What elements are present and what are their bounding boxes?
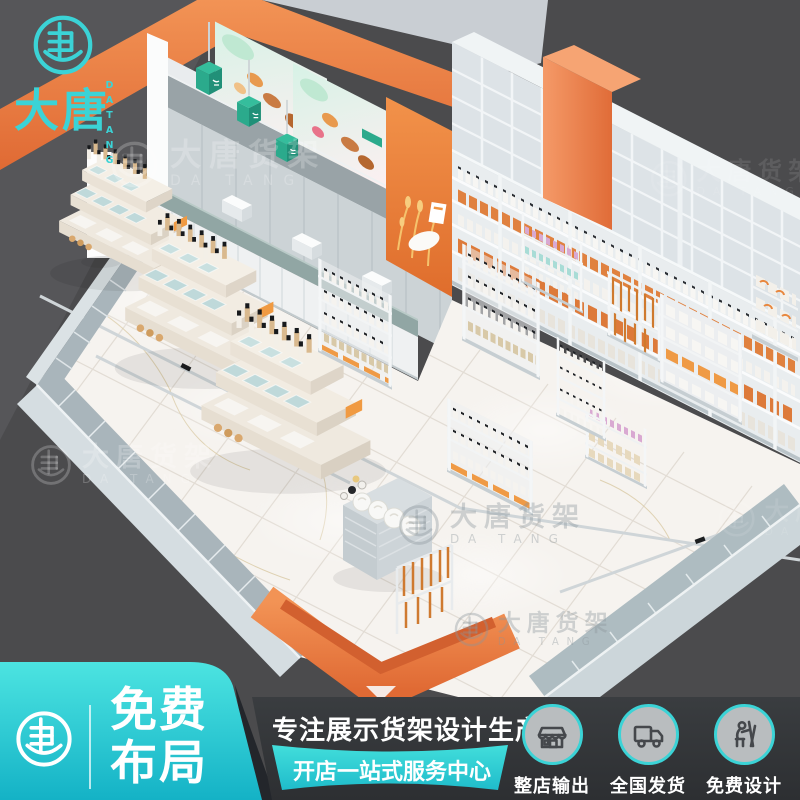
bottom-banner: 免费 布局 专注展示货架设计生产 开店一站式服务中心 整店输出: [0, 660, 800, 800]
storefront-icon: [522, 704, 583, 765]
feature-whole-store-output: 整店输出: [508, 704, 596, 798]
badge-divider: [89, 705, 91, 789]
banner-headline: 专注展示货架设计生产: [272, 710, 512, 747]
feature-list: 整店输出 全国发货: [508, 704, 788, 798]
poster-canvas: 大唐货架DA TANG 大唐货架DA TANG 大唐货架DA TANG 大唐货架…: [0, 0, 800, 800]
brand-name-latin: DATANG: [104, 80, 115, 170]
feature-label: 整店输出: [514, 772, 590, 798]
feature-free-design: 免费设计: [700, 704, 788, 798]
brand-logo: 大唐 DATANG: [0, 0, 150, 170]
feature-label: 全国发货: [610, 772, 686, 798]
banner-subheadline: 开店一站式服务中心: [272, 754, 512, 786]
free-design-icon: [714, 704, 775, 765]
brand-emblem-icon: [12, 707, 76, 771]
truck-icon: [618, 704, 679, 765]
feature-label: 免费设计: [706, 772, 782, 798]
feature-nationwide-shipping: 全国发货: [604, 704, 692, 798]
brand-emblem-icon: [29, 11, 97, 79]
brand-name: 大唐: [14, 74, 110, 139]
free-layout-badge: 免费 布局: [100, 684, 218, 790]
